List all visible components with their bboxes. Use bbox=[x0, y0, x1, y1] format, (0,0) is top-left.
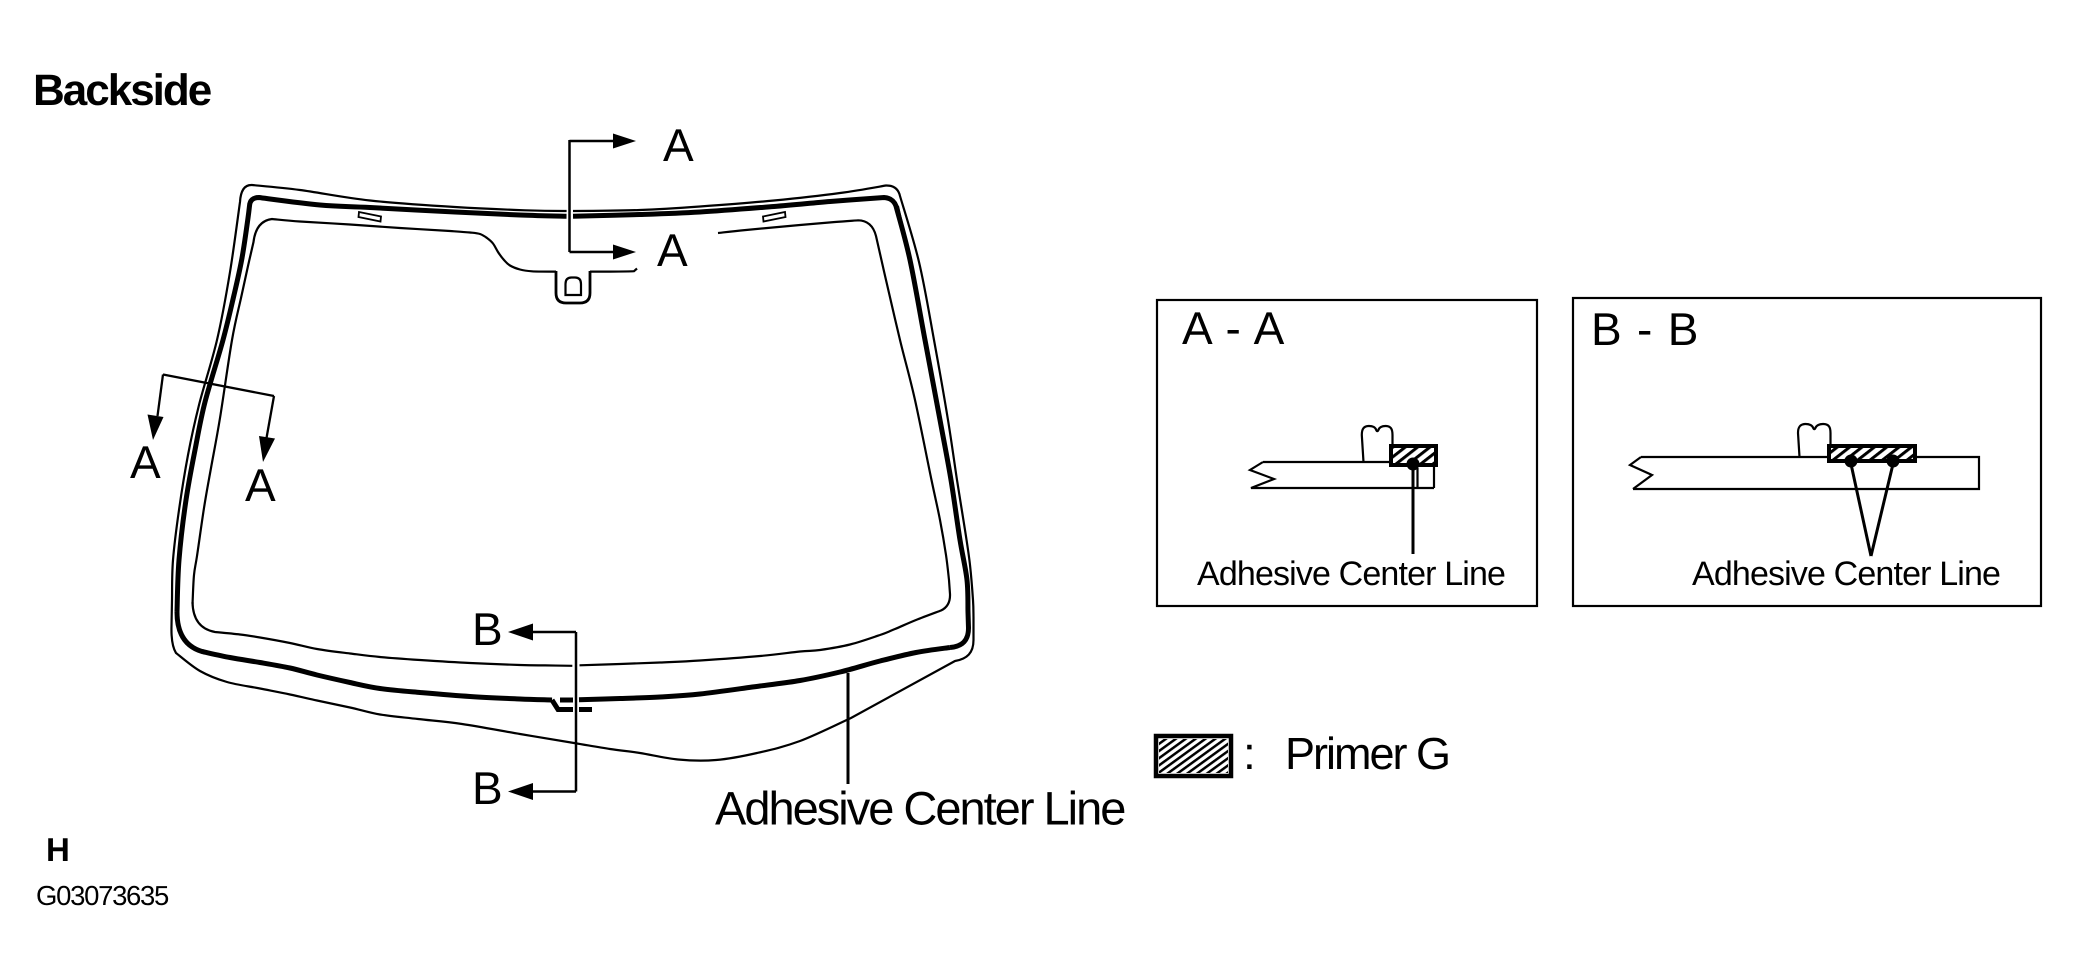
svg-text:Adhesive Center Line: Adhesive Center Line bbox=[1197, 555, 1505, 593]
svg-text:A: A bbox=[245, 459, 276, 511]
svg-text:A - A: A - A bbox=[1182, 302, 1286, 354]
svg-text:B: B bbox=[472, 762, 503, 814]
svg-text:A: A bbox=[657, 224, 688, 276]
svg-text:B: B bbox=[472, 603, 503, 655]
svg-text:Adhesive Center Line: Adhesive Center Line bbox=[715, 782, 1125, 835]
svg-text:A: A bbox=[130, 436, 161, 488]
svg-text:G03073635: G03073635 bbox=[36, 880, 169, 911]
svg-text:Primer G: Primer G bbox=[1285, 728, 1449, 779]
svg-text::: : bbox=[1243, 727, 1256, 779]
svg-text:H: H bbox=[46, 831, 70, 868]
svg-text:A: A bbox=[663, 119, 694, 171]
svg-text:Adhesive Center Line: Adhesive Center Line bbox=[1692, 555, 2000, 593]
svg-text:B - B: B - B bbox=[1591, 303, 1700, 355]
svg-text:Backside: Backside bbox=[33, 66, 211, 115]
